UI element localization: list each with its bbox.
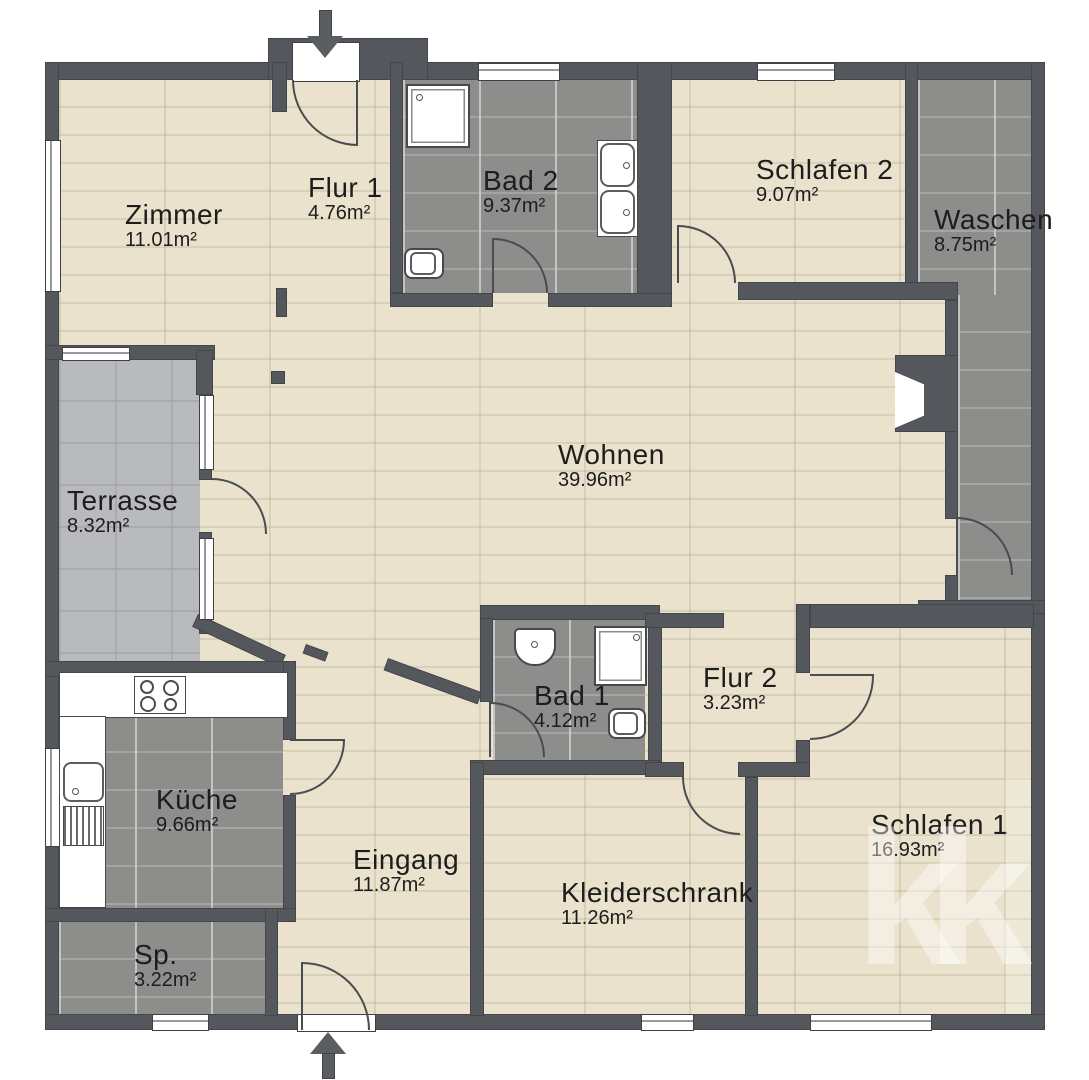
wall-schlafen2-bottom [738,282,958,300]
wall-flur2-bottom-west [645,762,684,777]
stove-burner-2 [163,680,179,696]
floor-waschen-upper [918,80,1031,295]
washbasin-bad2-1-tap [623,162,630,169]
room-label-bad1: Bad 1 4.12m² [534,681,610,733]
room-area: 39.96m² [558,470,665,492]
window-schlafen2 [757,63,835,81]
wall-bad2-schlafen2 [637,62,672,295]
wall-flur2-bottom-east [738,762,810,777]
window-bad2 [478,63,560,81]
door-leaf-bad2 [492,238,494,293]
room-label-terrasse: Terrasse 8.32m² [67,486,178,538]
room-area: 11.01m² [125,230,223,252]
room-name: Bad 1 [534,680,610,711]
wall-bad2-bottom-west [390,293,493,307]
wall-bad1-flur2 [648,618,662,762]
room-label-sp: Sp. 3.22m² [134,940,196,992]
room-area: 4.76m² [308,203,383,225]
wall-bad1-west [480,618,493,702]
shower-bad1-drain [633,634,640,641]
entry-arrow-top-head [307,36,343,58]
washbasin-bad2-2-tap [623,209,630,216]
room-area: 9.07m² [756,185,893,207]
room-label-kueche: Küche 9.66m² [156,785,238,837]
room-name: Terrasse [67,485,178,516]
window-kleiderschrank [641,1014,694,1031]
room-name: Bad 2 [483,165,559,196]
wall-flur1-bad2 [390,62,403,293]
window-terrasse-1 [199,395,214,470]
room-area: 3.23m² [703,693,778,715]
wall-bad1-bottom [470,760,660,775]
room-name: Flur 2 [703,662,778,693]
room-area: 4.12m² [534,711,610,733]
kitchen-drainboard [63,806,104,846]
room-name: Küche [156,784,238,815]
stove-burner-1 [140,680,154,694]
room-name: Waschen [934,204,1053,235]
room-label-flur2: Flur 2 3.23m² [703,663,778,715]
kitchen-sink-drain [72,788,79,795]
room-area: 11.26m² [561,908,753,930]
window-terrasse-top [62,347,130,361]
room-label-flur1: Flur 1 4.76m² [308,173,383,225]
room-name: Schlafen 2 [756,154,893,185]
window-sp [152,1014,209,1031]
wall-flur2-schlafen1-a [796,604,810,673]
wall-pillar-b [271,371,285,384]
window-schlafen1 [810,1014,932,1031]
floor-plan: Zimmer 11.01m² Flur 1 4.76m² Bad 2 9.37m… [0,0,1089,1080]
room-label-wohnen: Wohnen 39.96m² [558,440,665,492]
room-area: 16.93m² [871,840,1008,862]
wall-kueche-sp [45,908,296,922]
door-leaf-waschen [956,517,958,575]
wall-terrasse-corner [196,350,213,395]
wall-pillar-a [276,288,287,317]
door-leaf-schlafen1 [810,674,874,676]
room-name: Sp. [134,939,178,970]
room-label-schlafen2: Schlafen 2 9.07m² [756,155,893,207]
room-label-schlafen1: Schlafen 1 16.93m² [871,810,1008,862]
kitchen-sink [63,762,104,802]
room-name: Flur 1 [308,172,383,203]
room-area: 9.66m² [156,815,238,837]
room-area: 11.87m² [353,875,459,897]
toilet-bad2-seat [410,252,436,275]
stove-burner-3 [140,696,156,712]
entry-arrow-top [319,10,332,38]
room-label-bad2: Bad 2 9.37m² [483,166,559,218]
window-zimmer [45,140,61,292]
shower-bad2 [406,84,470,148]
entry-arrow-bottom-head [310,1032,346,1054]
entry-arrow-bottom [322,1053,335,1079]
room-area: 8.75m² [934,235,1053,257]
room-name: Kleiderschrank [561,877,753,908]
room-label-kleiderschrank: Kleiderschrank 11.26m² [561,878,753,930]
wall-bad2-bottom-east [548,293,672,307]
wall-flur2-top [645,613,724,628]
wall-kueche-eingang-b [283,795,296,910]
room-label-waschen: Waschen 8.75m² [934,205,1053,257]
room-label-zimmer: Zimmer 11.01m² [125,200,223,252]
room-area: 9.37m² [483,196,559,218]
wall-zimmer-flur1 [272,62,287,112]
room-label-eingang: Eingang 11.87m² [353,845,459,897]
room-name: Zimmer [125,199,223,230]
stove-burner-4 [164,698,177,711]
shower-bad2-drain [416,94,423,101]
wall-schlafen2-waschen [905,62,918,295]
washbasin-bad1-tap [531,641,538,648]
door-leaf-entry-top [356,80,358,146]
watermark-band [1005,777,1031,1014]
door-leaf-schlafen2 [677,225,679,283]
wall-bad1-top [480,605,660,620]
wall-schlafen1-top [810,604,1034,628]
room-name: Eingang [353,844,459,875]
door-leaf-kueche [290,739,345,741]
toilet-bad1-seat [613,712,638,735]
room-name: Schlafen 1 [871,809,1008,840]
room-area: 8.32m² [67,516,178,538]
wall-eingang-kleiderschrank [470,762,484,1016]
door-leaf-bad1 [489,702,491,757]
room-area: 3.22m² [134,970,196,992]
window-terrasse-2 [199,538,214,620]
wall-sp-eingang [265,908,278,1016]
door-leaf-entry-bottom [301,962,303,1030]
room-name: Wohnen [558,439,665,470]
